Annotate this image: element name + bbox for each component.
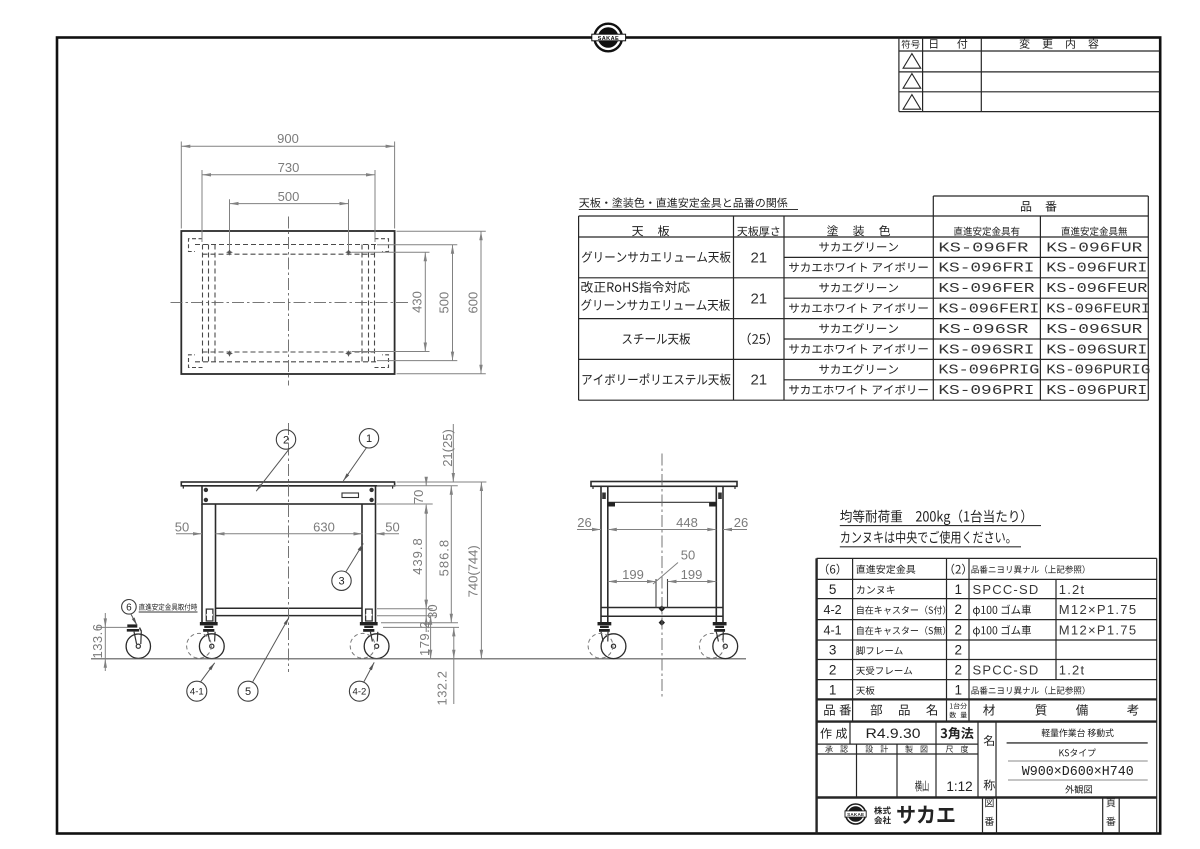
svg-text:21: 21 [750,371,767,388]
svg-text:133.6: 133.6 [90,623,105,658]
svg-text:2: 2 [954,662,962,677]
svg-text:50: 50 [385,519,399,534]
svg-text:KS-096FEUR: KS-096FEUR [1046,281,1148,297]
svg-text:SPCC-SD: SPCC-SD [973,662,1040,677]
svg-text:5: 5 [245,686,251,698]
svg-text:448: 448 [676,515,698,530]
svg-text:26: 26 [577,515,591,530]
svg-text:179.2: 179.2 [417,621,432,656]
svg-text:1.2t: 1.2t [1059,582,1085,597]
svg-text:1: 1 [366,433,372,445]
svg-text:3: 3 [829,643,837,658]
svg-text:50: 50 [681,548,695,563]
svg-text:KS-096FER: KS-096FER [938,281,1035,297]
svg-text:4-1: 4-1 [824,623,842,637]
svg-text:500: 500 [278,189,300,204]
svg-text:KS-096SR: KS-096SR [938,322,1029,338]
svg-text:2: 2 [954,602,962,617]
svg-text:M12×P1.75: M12×P1.75 [1059,622,1138,637]
svg-text:2: 2 [954,643,962,658]
svg-text:KS-096FR: KS-096FR [938,240,1029,256]
svg-text:M12×P1.75: M12×P1.75 [1059,602,1138,617]
svg-text:4-2: 4-2 [824,603,842,617]
svg-text:KS-096PURIG: KS-096PURIG [1046,363,1150,379]
svg-text:730: 730 [278,160,300,175]
svg-text:KS-096SUR: KS-096SUR [1046,322,1143,338]
svg-text:199: 199 [622,567,644,582]
svg-text:4-1: 4-1 [190,687,204,698]
svg-text:21: 21 [750,249,767,266]
svg-text:26: 26 [734,515,748,530]
svg-text:6: 6 [126,602,132,613]
svg-text:3: 3 [338,576,344,588]
svg-text:70: 70 [411,490,426,504]
svg-text:500: 500 [437,292,452,314]
svg-text:740(744): 740(744) [466,545,481,597]
svg-text:KS-096FERI: KS-096FERI [938,302,1039,318]
svg-text:KS-096SURI: KS-096SURI [1046,342,1147,358]
svg-text:KS-096PRIG: KS-096PRIG [938,363,1039,379]
svg-text:600: 600 [465,292,480,314]
svg-text:630: 630 [313,519,335,534]
svg-text:132.2: 132.2 [435,670,450,705]
svg-text:2: 2 [283,434,289,446]
svg-text:5: 5 [829,582,837,597]
svg-text:KS-096FEURI: KS-096FEURI [1046,302,1150,318]
svg-text:4-2: 4-2 [353,687,367,698]
svg-text:199: 199 [681,567,703,582]
svg-text:1: 1 [954,582,962,597]
svg-text:430: 430 [409,291,424,313]
svg-text:SAKAE: SAKAE [847,812,864,817]
svg-text:21(25): 21(25) [440,429,455,467]
svg-text:900: 900 [277,131,299,146]
svg-text:2: 2 [954,622,962,637]
svg-text:KS-096PURI: KS-096PURI [1046,383,1147,399]
svg-text:586.8: 586.8 [437,539,452,577]
svg-text:1: 1 [829,682,837,697]
svg-text:R4.9.30: R4.9.30 [866,726,921,741]
svg-text:W900×D600×H740: W900×D600×H740 [1022,765,1134,780]
svg-text:2: 2 [829,662,837,677]
svg-text:KS-096PRI: KS-096PRI [938,383,1034,399]
svg-text:KS-096FRI: KS-096FRI [938,261,1034,277]
svg-text:SPCC-SD: SPCC-SD [973,582,1040,597]
svg-text:1:12: 1:12 [946,779,972,794]
svg-text:439.8: 439.8 [410,537,425,575]
svg-text:21: 21 [750,290,767,307]
svg-text:KS-096FUR: KS-096FUR [1046,240,1143,256]
svg-text:1: 1 [954,682,962,697]
svg-text:SAKAE: SAKAE [598,36,620,42]
svg-text:KS-096SRI: KS-096SRI [938,342,1034,358]
svg-text:1.2t: 1.2t [1059,662,1085,677]
svg-text:50: 50 [175,519,189,534]
svg-text:30: 30 [425,604,440,618]
svg-text:KS-096FURI: KS-096FURI [1046,261,1147,277]
